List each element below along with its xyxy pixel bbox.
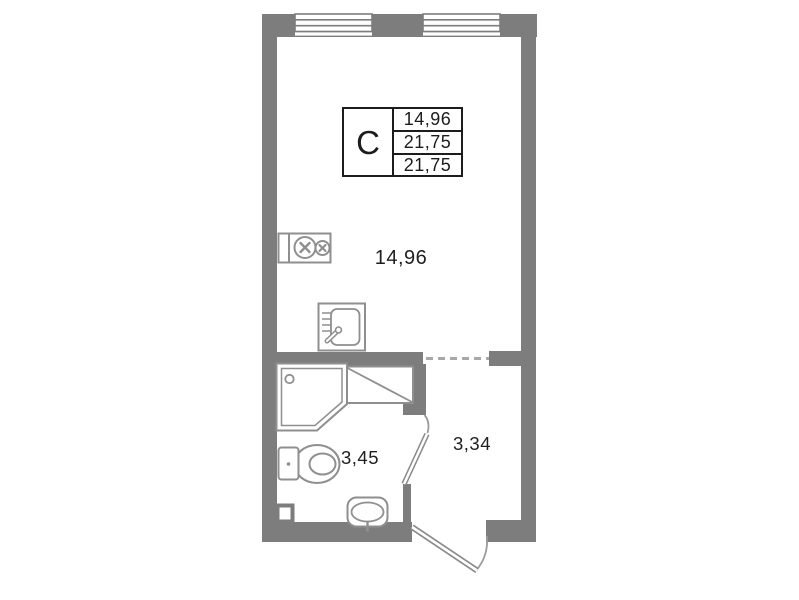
stove-icon	[279, 234, 331, 263]
living-room-area-label: 14,96	[375, 247, 428, 269]
bathroom-door-icon	[404, 415, 429, 484]
kitchen-sink-icon	[319, 304, 366, 351]
wall-bathroom-divider-foot	[403, 404, 426, 415]
entry-door-icon	[412, 527, 487, 571]
wall-bottom-bathroom	[262, 522, 412, 542]
wall-bathroom-divider-lower	[403, 484, 411, 522]
pipe-box	[278, 506, 293, 522]
bathroom-area-label: 3,45	[341, 447, 379, 468]
wall-right	[521, 14, 536, 542]
wall-bottom-hallway-stub	[486, 520, 536, 542]
shower-cabin-icon	[277, 364, 348, 431]
unit-area-row-total: 21,75	[394, 132, 461, 155]
unit-type-cell: C	[344, 109, 394, 175]
unit-area-rows: 14,96 21,75 21,75	[394, 109, 461, 175]
hallway-area-label: 3,34	[453, 433, 491, 454]
wall-interior-right-stub	[489, 351, 521, 366]
toilet-icon	[279, 445, 340, 483]
vent-niche-icon	[346, 367, 414, 404]
wall-left	[262, 14, 277, 542]
floor-plan-page: 14,96 3,45 3,34 C 14,96 21,75 21,75	[0, 0, 799, 600]
unit-area-row-living: 14,96	[394, 109, 461, 132]
unit-info-table: C 14,96 21,75 21,75	[342, 107, 463, 177]
floor-plan-drawing: 14,96 3,45 3,34	[0, 0, 799, 600]
unit-area-row-total-2: 21,75	[394, 155, 461, 176]
wall-bathroom-divider-upper	[413, 364, 426, 405]
washbasin-icon	[348, 498, 388, 532]
